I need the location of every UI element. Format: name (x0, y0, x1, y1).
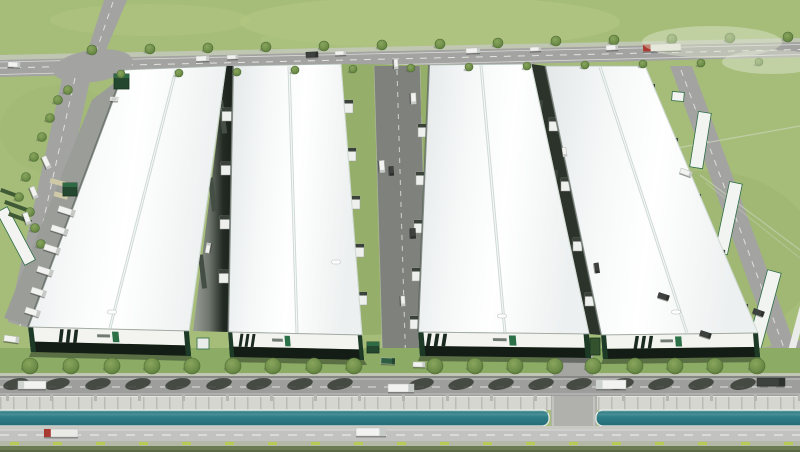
truck-cab (401, 303, 405, 306)
truck-dark (388, 166, 394, 175)
truck-cab (390, 173, 394, 176)
truck-cab (44, 429, 51, 437)
tree (31, 224, 40, 233)
median-marker (698, 442, 707, 445)
canal-wall-post (138, 394, 141, 401)
warehouse-2-brand-logo-icon (284, 336, 290, 347)
tree (38, 133, 47, 142)
truck-red (44, 429, 78, 438)
truck-white (378, 160, 385, 172)
tree (346, 358, 362, 374)
median-marker (440, 442, 449, 445)
warehouse-1-brand-logo-icon (112, 332, 119, 343)
gate-house (197, 338, 209, 349)
median-marker (182, 442, 191, 445)
median-marker (784, 442, 793, 445)
canal-wall-post (710, 394, 713, 401)
tree (30, 153, 39, 162)
truck-dark (409, 228, 416, 238)
tree (523, 62, 531, 70)
median-marker (354, 442, 363, 445)
truck-cab (615, 45, 618, 50)
canal-wall-post (270, 394, 273, 401)
tree (261, 42, 271, 52)
loading-dock-canopy (222, 108, 232, 112)
canal-wall-post (446, 394, 449, 401)
loading-dock-canopy (347, 148, 356, 152)
truck-green (381, 358, 395, 366)
canal-wall-post (314, 394, 317, 401)
tree (427, 358, 443, 374)
loading-dock-canopy (355, 244, 364, 248)
tree (783, 32, 793, 42)
truck-cab (379, 428, 386, 436)
tree (407, 64, 415, 72)
median-marker (655, 442, 664, 445)
warehouse-2-logo-text (272, 338, 283, 341)
truck-white (409, 93, 416, 104)
truck-white (399, 296, 405, 306)
canal-wall-post (50, 394, 53, 401)
tree (667, 358, 683, 374)
loading-dock-canopy (351, 196, 360, 200)
truck-cab (394, 66, 398, 69)
tree (319, 41, 329, 51)
tree (15, 193, 24, 202)
truck-whiteL (596, 380, 626, 390)
tree (117, 70, 125, 78)
canal-wall (0, 396, 800, 410)
warehouse-4-roof-vent (672, 310, 681, 314)
median-marker (569, 442, 578, 445)
tree (749, 358, 765, 374)
utility-box (672, 91, 685, 101)
warehouse-1-roof-vent (108, 310, 117, 314)
truck-dark (306, 52, 318, 59)
median-marker (741, 442, 750, 445)
truck-cab (18, 381, 24, 389)
loading-dock-canopy (344, 100, 353, 104)
median-marker (526, 442, 535, 445)
tree (377, 40, 387, 50)
truck-white (356, 428, 386, 437)
truck-white (335, 51, 346, 57)
canal-wall-post (226, 394, 229, 401)
canal-wall-post (402, 394, 405, 401)
truck-white (388, 384, 414, 393)
tree (551, 36, 561, 46)
tree (707, 358, 723, 374)
tree (22, 173, 31, 182)
tree (581, 61, 589, 69)
tree (22, 358, 38, 374)
tree (609, 35, 619, 45)
median-marker (139, 442, 148, 445)
truck-cab (17, 62, 20, 67)
truck-white (606, 45, 618, 52)
tree (225, 358, 241, 374)
guard-house-roof (63, 183, 77, 187)
truck-white (530, 47, 541, 53)
truck-white (466, 48, 480, 55)
truck-cab (411, 236, 416, 239)
tree (349, 65, 357, 73)
tree (467, 358, 483, 374)
canal-wall-post (182, 394, 185, 401)
canal-wall-post (534, 394, 537, 401)
truck-cab (206, 56, 209, 61)
tree (493, 38, 503, 48)
canal-wall-post (358, 394, 361, 401)
warehouse-3-brand-logo-icon (509, 335, 517, 345)
loading-dock-canopy (221, 162, 231, 166)
tree (465, 63, 473, 71)
truck-cab (411, 101, 416, 104)
truck-cab (380, 170, 385, 173)
corridor-grass-patch (361, 176, 376, 196)
median-marker (311, 442, 320, 445)
truck-white (8, 62, 20, 69)
truck-cab (235, 55, 238, 59)
car-roof (111, 98, 116, 101)
warehouse-3-logo-text (493, 338, 507, 341)
median-marker (96, 442, 105, 445)
truck-cab (422, 362, 425, 367)
warehouse-4-brand-logo-icon (675, 336, 682, 346)
tree (306, 358, 322, 374)
tree (64, 86, 73, 95)
tree (585, 358, 601, 374)
tree (175, 69, 183, 77)
median-marker (612, 442, 621, 445)
tree (63, 358, 79, 374)
tree (144, 358, 160, 374)
truck-white (413, 362, 425, 369)
median-marker (483, 442, 492, 445)
warehouse-4-logo-text (660, 339, 673, 342)
canal-wall-post (666, 394, 669, 401)
truck-cab (477, 48, 480, 53)
canal-wall-post (94, 394, 97, 401)
aerial-render: 3D architectural aerial rendering of an … (0, 0, 800, 452)
truck-cab (596, 380, 603, 389)
tree (265, 358, 281, 374)
tree (145, 44, 155, 54)
truck-white (227, 55, 238, 61)
warehouse-3-roof-vent (498, 314, 507, 318)
truck-cab (392, 358, 395, 364)
guard-house-roof (367, 342, 379, 346)
warehouse-2-roof-vent (332, 260, 341, 264)
corridor-grass-patch (358, 86, 373, 106)
tree (87, 45, 97, 55)
median-marker (397, 442, 406, 445)
tree (54, 96, 63, 105)
warehouse-4-facade-base (602, 347, 760, 359)
tree (184, 358, 200, 374)
truck-white (196, 56, 209, 63)
canal-wall-post (490, 394, 493, 401)
truck-cab (315, 52, 318, 57)
loading-dock-canopy (219, 270, 229, 274)
grass-highlight (50, 4, 250, 36)
truck-car (110, 97, 118, 103)
guard-house (590, 338, 600, 355)
tree (507, 358, 523, 374)
truck-cab (343, 51, 346, 55)
scene-canvas: Aerial rendering of logistics industrial… (0, 0, 800, 452)
median-marker (268, 442, 277, 445)
tree (203, 43, 213, 53)
tree (639, 60, 647, 68)
tree (435, 39, 445, 49)
median-marker (10, 442, 19, 445)
truck-cab (779, 378, 785, 386)
tree (697, 59, 705, 67)
median-marker (53, 442, 62, 445)
tree (104, 358, 120, 374)
truck-dark (757, 378, 785, 387)
truck-cab (538, 47, 541, 51)
canal-wall-post (6, 394, 9, 401)
truck-white (392, 59, 398, 69)
tree (291, 66, 299, 74)
tree (233, 68, 241, 76)
tree (627, 358, 643, 374)
median-marker (225, 442, 234, 445)
tree (547, 358, 563, 374)
warehouse-1-logo-text (97, 334, 110, 337)
corridor-grass-patch (364, 268, 379, 288)
tree (46, 114, 55, 123)
truck-cab (408, 384, 414, 392)
canal-wall-post (754, 394, 757, 401)
canal-wall-post (622, 394, 625, 401)
warehouse-3-facade-base (419, 346, 591, 358)
truck-whiteL (18, 381, 46, 390)
loading-dock-canopy (220, 216, 230, 220)
